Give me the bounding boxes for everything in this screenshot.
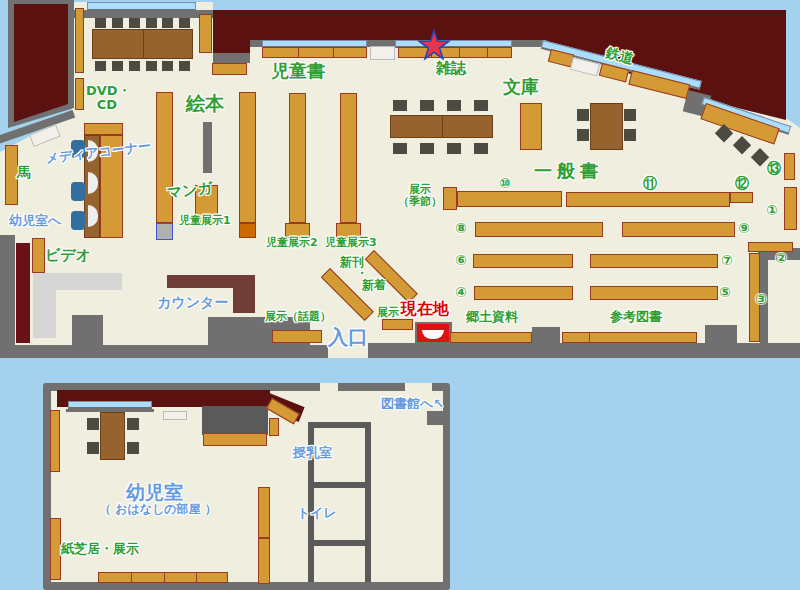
chair [112, 61, 123, 71]
shelf-end-display [239, 223, 256, 238]
partition-wall [308, 540, 365, 546]
chair [146, 61, 157, 71]
label-bunko: 文庫 [503, 78, 539, 97]
label-uma: 馬 [17, 165, 31, 180]
display-stand [370, 46, 395, 60]
shelf-number-12: ⑫ [735, 175, 749, 193]
label-yojishitsu: 幼児室 [126, 483, 183, 503]
wall [70, 10, 213, 18]
bookshelf-1 [784, 187, 797, 230]
pillar [203, 122, 212, 173]
current-location-marker [417, 324, 449, 342]
wall [368, 343, 800, 358]
partition-wall [308, 422, 371, 428]
shelf-number-6: ⑥ [455, 252, 467, 268]
media-desk [84, 123, 123, 135]
label-ippansho: 一般書 [534, 162, 603, 181]
service-counter [233, 288, 255, 313]
bookshelf [156, 92, 173, 223]
label-ohanashi: （ おはなしの部屋 ） [99, 503, 217, 516]
bookshelf-13 [784, 153, 795, 180]
window-strip [87, 2, 196, 11]
wall [427, 411, 443, 425]
bookshelf [75, 8, 84, 73]
magazine-shelf [398, 47, 512, 58]
bookshelf [258, 538, 270, 584]
chair [87, 442, 99, 454]
bookshelf [199, 14, 212, 53]
bookshelf [75, 78, 84, 110]
chair [129, 61, 140, 71]
display-shelf [382, 319, 413, 330]
bookshelf [289, 93, 306, 223]
bookshelf-5 [590, 286, 718, 300]
chair [393, 100, 407, 111]
chair [127, 418, 139, 430]
chair [577, 109, 589, 121]
window-strip [68, 401, 152, 409]
shelf-number-1: ① [766, 202, 778, 218]
wall [72, 315, 103, 345]
chair [624, 109, 636, 121]
bookshelf-9 [622, 222, 735, 237]
chair [162, 61, 173, 71]
marker-inner [422, 330, 444, 339]
reading-table [390, 115, 493, 138]
chair [127, 442, 139, 454]
reading-table [92, 29, 193, 59]
chair [420, 100, 434, 111]
label-jido-tenji2: 児童展示2 [266, 237, 318, 249]
bookshelf [340, 93, 357, 223]
bookshelf [32, 238, 45, 273]
bookshelf [50, 518, 61, 580]
carpet-area [33, 273, 56, 338]
bookshelf [212, 63, 247, 75]
shelf-number-3: ③ [755, 291, 767, 307]
stair-block [202, 406, 268, 435]
chair [87, 418, 99, 430]
display-stand [163, 411, 187, 420]
label-tenji-kisetsu: 展示（季節） [398, 184, 442, 207]
chair [179, 18, 190, 28]
picture-story-shelf [98, 572, 228, 583]
service-counter [167, 275, 255, 288]
chair [474, 100, 488, 111]
arrow-icon: ↖ [433, 396, 444, 411]
shelf-number-11: ⑪ [643, 175, 657, 193]
partition-wall [365, 422, 371, 582]
dark-red-bar [16, 243, 30, 343]
annex-passage [405, 383, 432, 395]
bookshelf [203, 433, 267, 446]
label-tenji-wadai: 展示（話題） [265, 311, 331, 323]
kids-table [100, 412, 125, 460]
shelf-number-10: ⑩ [499, 175, 511, 191]
label-tenji: 展示 [377, 307, 399, 319]
bookshelf-11 [566, 192, 730, 207]
label-toshokan-he: 図書館へ↖ [381, 397, 444, 411]
wall [0, 345, 328, 358]
display-shelf [272, 330, 322, 343]
label-jido-tenji1: 児童展示1 [179, 215, 231, 227]
reading-table [590, 103, 623, 150]
library-floor-map: DVD・CD 児童書 絵本 雑誌 文庫 鉄道 一般書 展示（季節） 馬 メディア… [0, 0, 800, 590]
label-sanko-tosho: 参考図書 [610, 310, 662, 324]
bookshelf [520, 103, 542, 150]
label-iriguchi: 入口 [328, 327, 368, 348]
chair [129, 18, 140, 28]
wall [705, 325, 737, 345]
media-chair [71, 211, 85, 230]
media-chair [71, 182, 85, 201]
label-jidosho: 児童書 [271, 62, 325, 81]
chair [624, 129, 636, 141]
magazine-shelf [262, 47, 367, 58]
wall [213, 53, 250, 63]
label-yojishitsu-he: 幼児室へ [9, 214, 61, 228]
chair [95, 61, 106, 71]
chair [420, 143, 434, 154]
seasonal-display-shelf [443, 187, 457, 210]
shelf-number-5: ⑤ [719, 284, 731, 300]
annex-notch [320, 383, 338, 392]
wall [0, 235, 15, 345]
shelf-number-2: ② [775, 250, 787, 266]
bookshelf [50, 410, 60, 472]
shelf-number-4: ④ [455, 284, 467, 300]
chair [146, 18, 157, 28]
label-zasshi: 雑誌 [436, 61, 466, 77]
label-toilet: トイレ [297, 506, 337, 520]
shelf-number-7: ⑦ [721, 252, 733, 268]
local-materials-shelf [450, 332, 532, 343]
bookshelf-4 [474, 286, 573, 300]
bookshelf [239, 92, 256, 223]
bookshelf [258, 487, 270, 538]
partition-wall [308, 482, 365, 488]
shelf-number-8: ⑧ [455, 220, 467, 236]
chair [474, 143, 488, 154]
chair [393, 143, 407, 154]
reference-shelf [562, 332, 697, 343]
chair [179, 61, 190, 71]
outside-area [213, 10, 250, 57]
chair [112, 18, 123, 28]
wall [532, 327, 560, 345]
bookshelf-10 [457, 191, 562, 207]
bookshelf-12 [730, 192, 753, 203]
bookshelf [269, 418, 279, 436]
chair [577, 129, 589, 141]
label-video: ビデオ [45, 248, 91, 264]
bookshelf-7 [590, 254, 718, 268]
label-jido-tenji3: 児童展示3 [325, 237, 377, 249]
label-junyushitsu: 授乳室 [293, 446, 332, 460]
outside-area [213, 10, 547, 42]
chair [95, 18, 106, 28]
bookshelf-6 [473, 254, 573, 268]
label-ehon: 絵本 [186, 94, 224, 114]
shelf-number-13: ⑬ [767, 160, 781, 178]
label-genzaichi: 現在地 [401, 301, 449, 318]
chair [447, 100, 461, 111]
label-shinchaku: 新着 [362, 279, 386, 292]
label-kamishibai: 紙芝居・展示 [61, 542, 139, 556]
bookshelf-8 [475, 222, 603, 237]
shelf-number-9: ⑨ [738, 220, 750, 236]
label-kyodo-shiryo: 郷土資料 [466, 310, 518, 324]
shelf-end-display [156, 223, 173, 240]
chair [447, 143, 461, 154]
label-dvd-cd: DVD・CD [86, 84, 128, 111]
chair [162, 18, 173, 28]
label-counter: カウンター [157, 295, 228, 310]
